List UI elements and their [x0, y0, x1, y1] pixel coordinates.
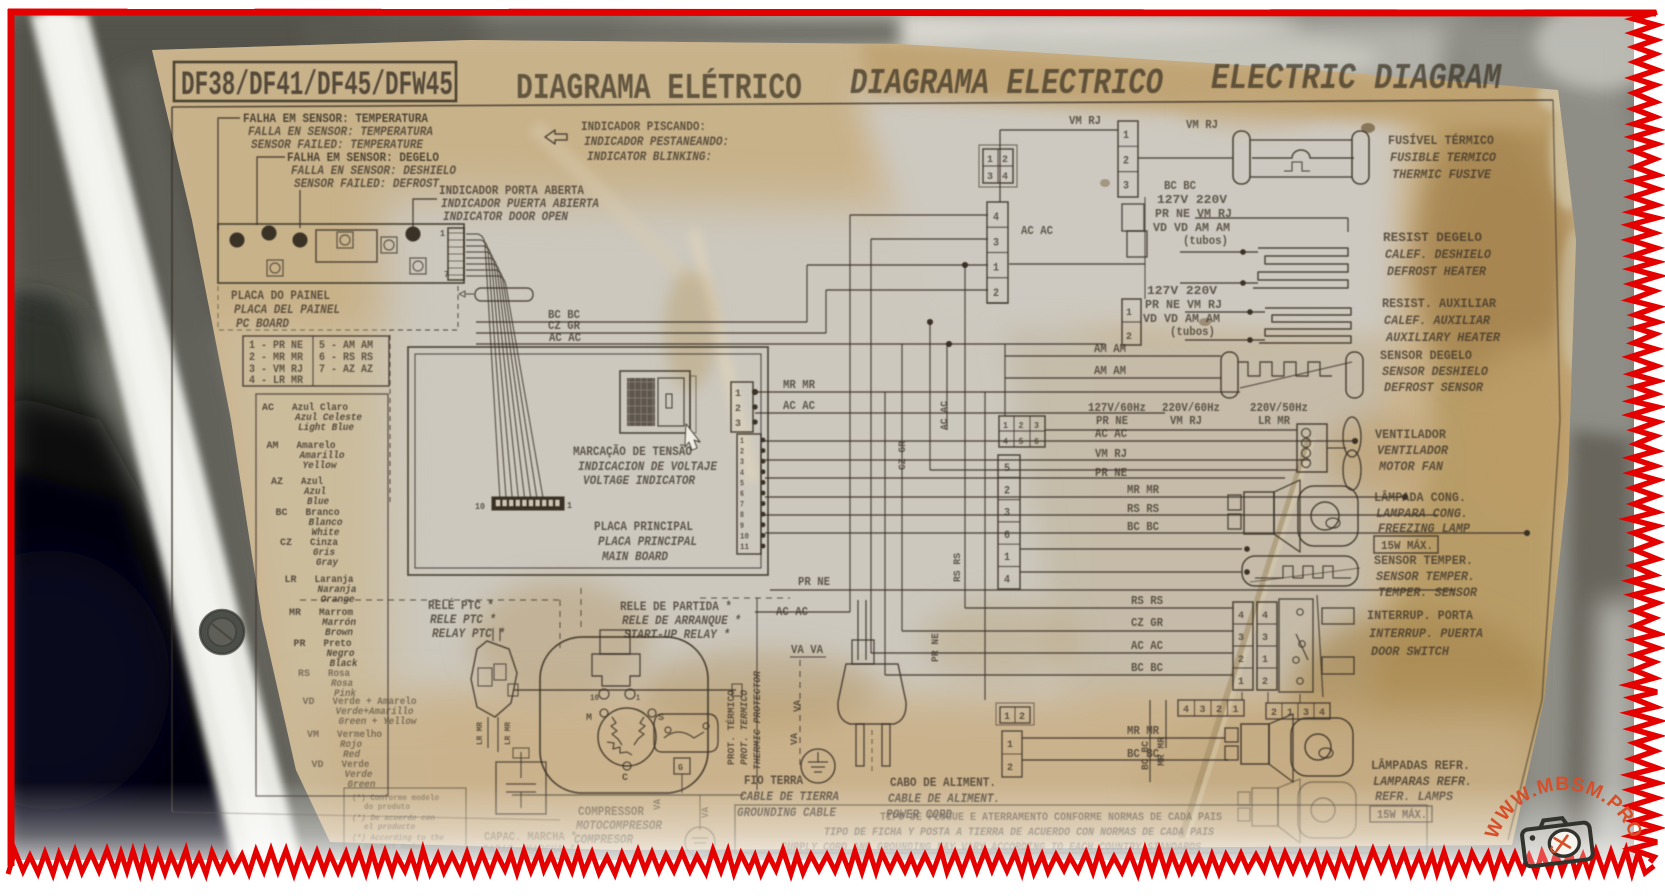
svg-text:VD: VD — [303, 696, 315, 708]
svg-text:LAMPARA CONG.: LAMPARA CONG. — [1376, 506, 1468, 521]
svg-text:DOOR SWITCH: DOOR SWITCH — [1371, 644, 1449, 659]
svg-text:15W MÁX.: 15W MÁX. — [1381, 538, 1433, 553]
svg-text:VD: VD — [312, 759, 324, 771]
svg-text:RELE DE PARTIDA *: RELE DE PARTIDA * — [620, 600, 732, 614]
svg-text:LR MR: LR MR — [503, 721, 513, 745]
svg-text:BC: BC — [276, 507, 289, 519]
svg-text:FALLA EN SENSOR: TEMPERATURA: FALLA EN SENSOR: TEMPERATURA — [248, 125, 433, 139]
svg-text:ELECTRIC DIAGRAM: ELECTRIC DIAGRAM — [1211, 58, 1502, 99]
svg-text:11: 11 — [740, 542, 749, 552]
svg-text:3: 3 — [1123, 181, 1129, 193]
svg-text:MOTOR FAN: MOTOR FAN — [1378, 459, 1443, 474]
svg-text:START-UP RELAY *: START-UP RELAY * — [624, 628, 730, 642]
svg-text:DIAGRAMA ELECTRICO: DIAGRAMA ELECTRICO — [850, 63, 1163, 104]
svg-text:RESIST DEGELO: RESIST DEGELO — [1383, 230, 1482, 245]
svg-text:6 - RS RS: 6 - RS RS — [319, 352, 373, 364]
svg-text:AC AC: AC AC — [1021, 224, 1053, 238]
svg-text:Gray: Gray — [316, 558, 339, 569]
svg-text:AC AC: AC AC — [939, 400, 951, 430]
svg-text:MR MR: MR MR — [1127, 724, 1160, 738]
svg-text:220V/50Hz: 220V/50Hz — [1250, 401, 1308, 415]
svg-text:6: 6 — [1004, 530, 1010, 542]
svg-text:3: 3 — [735, 419, 741, 430]
svg-text:4: 4 — [740, 468, 744, 478]
svg-text:PR NE: PR NE — [798, 575, 830, 589]
svg-text:7: 7 — [444, 270, 449, 280]
svg-text:FALLA EN SENSOR: DESHIELO: FALLA EN SENSOR: DESHIELO — [291, 164, 456, 178]
svg-text:2: 2 — [1004, 485, 1010, 497]
svg-text:6: 6 — [740, 489, 744, 499]
svg-text:DIAGRAMA ELÉTRICO: DIAGRAMA ELÉTRICO — [516, 67, 802, 109]
svg-text:2: 2 — [1123, 155, 1129, 167]
svg-text:1: 1 — [1004, 712, 1010, 723]
svg-text:VM RJ: VM RJ — [1186, 118, 1218, 132]
svg-text:RELE DE ARRANQUE *: RELE DE ARRANQUE * — [622, 614, 741, 628]
svg-text:VA VA: VA VA — [791, 643, 824, 657]
svg-text:4: 4 — [1004, 575, 1010, 587]
svg-text:Green + Yellow: Green + Yellow — [339, 716, 418, 728]
svg-text:Brown: Brown — [325, 628, 353, 639]
svg-text:PR NE VM RJ: PR NE VM RJ — [1155, 207, 1232, 221]
svg-text:9: 9 — [740, 521, 744, 531]
svg-text:SENSOR FAILED: DEFROST: SENSOR FAILED: DEFROST — [294, 177, 440, 191]
svg-text:1: 1 — [1004, 552, 1010, 564]
svg-text:5: 5 — [740, 478, 744, 488]
svg-text:7: 7 — [740, 500, 744, 510]
svg-text:127V 220V: 127V 220V — [1157, 193, 1228, 207]
svg-text:AC AC: AC AC — [1095, 427, 1127, 441]
svg-text:SENSOR DEGELO: SENSOR DEGELO — [1380, 348, 1472, 363]
svg-text:2: 2 — [1262, 676, 1268, 688]
svg-text:G: G — [678, 763, 683, 773]
svg-text:THERMIC PROTECTOR: THERMIC PROTECTOR — [752, 670, 764, 770]
svg-text:SENSOR DESHIELO: SENSOR DESHIELO — [1382, 364, 1488, 379]
svg-text:1: 1 — [1233, 705, 1239, 716]
svg-text:2: 2 — [1007, 763, 1013, 774]
svg-text:1: 1 — [1126, 308, 1132, 319]
svg-text:INTERRUP. PORTA: INTERRUP. PORTA — [1367, 608, 1473, 623]
svg-text:10: 10 — [740, 531, 749, 541]
svg-text:BC BC: BC BC — [1164, 179, 1196, 193]
svg-text:1: 1 — [993, 263, 999, 275]
svg-text:AUXILIARY HEATER: AUXILIARY HEATER — [1385, 330, 1500, 345]
svg-text:AC AC: AC AC — [1131, 639, 1163, 653]
svg-text:SENSOR FAILED: TEMPERATURE: SENSOR FAILED: TEMPERATURE — [251, 138, 423, 152]
svg-text:AM: AM — [267, 440, 279, 452]
svg-text:4: 4 — [1183, 705, 1189, 716]
svg-text:2: 2 — [735, 404, 741, 415]
svg-text:RS: RS — [298, 668, 310, 680]
svg-text:2: 2 — [740, 447, 744, 457]
svg-text:LÂMPADA CONG.: LÂMPADA CONG. — [1374, 490, 1466, 505]
svg-text:INDICADOR PUERTA ABIERTA: INDICADOR PUERTA ABIERTA — [441, 197, 599, 211]
svg-text:INDICADOR PESTANEANDO:: INDICADOR PESTANEANDO: — [584, 135, 729, 149]
svg-text:VM: VM — [307, 729, 319, 741]
svg-text:3: 3 — [1238, 632, 1244, 644]
svg-text:1: 1 — [440, 229, 446, 239]
svg-text:DEFROST SENSOR: DEFROST SENSOR — [1384, 380, 1483, 395]
svg-text:M: M — [586, 713, 592, 724]
svg-text:INDICADOR PISCANDO:: INDICADOR PISCANDO: — [581, 120, 706, 134]
svg-text:INDICADOR PORTA ABERTA: INDICADOR PORTA ABERTA — [439, 184, 584, 198]
svg-text:2: 2 — [1126, 332, 1132, 343]
svg-text:127V/60Hz: 127V/60Hz — [1088, 401, 1146, 415]
svg-text:CZ GR: CZ GR — [1131, 616, 1164, 630]
svg-text:LR MR: LR MR — [475, 721, 485, 745]
svg-text:VD VD AM AM: VD VD AM AM — [1143, 312, 1220, 326]
svg-text:4 - LR MR: 4 - LR MR — [249, 375, 303, 387]
svg-text:(tubos): (tubos) — [1170, 325, 1215, 339]
svg-text:MR MR: MR MR — [1127, 483, 1160, 497]
svg-text:INDICACION DE VOLTAJE: INDICACION DE VOLTAJE — [578, 460, 717, 474]
svg-text:6: 6 — [1034, 436, 1039, 447]
svg-text:MR MR: MR MR — [783, 378, 816, 392]
svg-text:FUSÍVEL TÉRMICO: FUSÍVEL TÉRMICO — [1388, 133, 1494, 148]
svg-text:1: 1 — [1003, 420, 1008, 431]
svg-text:3: 3 — [1200, 705, 1206, 716]
svg-text:RS RS: RS RS — [1131, 594, 1163, 608]
svg-text:Light Blue: Light Blue — [298, 422, 354, 434]
svg-text:1: 1 — [987, 155, 993, 166]
svg-text:LR: LR — [285, 574, 298, 586]
svg-text:Blue: Blue — [307, 496, 329, 508]
svg-text:VD VD AM AM: VD VD AM AM — [1153, 221, 1230, 235]
svg-text:3: 3 — [1004, 508, 1010, 520]
svg-text:BC BC: BC BC — [1127, 520, 1159, 534]
svg-text:1: 1 — [1238, 676, 1244, 688]
svg-text:CZ: CZ — [280, 537, 292, 549]
svg-text:4: 4 — [1262, 610, 1268, 622]
svg-text:2: 2 — [1019, 420, 1024, 431]
svg-text:PLACA PRINCIPAL: PLACA PRINCIPAL — [598, 535, 697, 549]
svg-text:MARCAÇÃO DE TENSÃO: MARCAÇÃO DE TENSÃO — [573, 444, 692, 459]
svg-text:220V/60Hz: 220V/60Hz — [1162, 401, 1220, 415]
svg-text:VENTILADOR: VENTILADOR — [1375, 427, 1446, 442]
svg-text:LR MR: LR MR — [1258, 414, 1291, 428]
svg-text:MR: MR — [289, 607, 302, 619]
svg-text:AC AC: AC AC — [783, 399, 815, 413]
svg-text:5: 5 — [1004, 463, 1010, 475]
svg-text:127V 220V: 127V 220V — [1147, 284, 1218, 298]
svg-text:RESIST. AUXILIAR: RESIST. AUXILIAR — [1382, 296, 1496, 311]
svg-text:RELAY PTC *: RELAY PTC * — [432, 627, 505, 641]
svg-text:(tubos): (tubos) — [1183, 234, 1228, 248]
svg-text:PLACA PRINCIPAL: PLACA PRINCIPAL — [594, 520, 693, 534]
svg-text:1: 1 — [1007, 740, 1013, 751]
svg-text:BC BC: BC BC — [1127, 747, 1159, 761]
svg-text:AC AC: AC AC — [776, 605, 808, 619]
svg-text:PROT. TERMICO: PROT. TERMICO — [739, 689, 751, 765]
svg-text:FALHA EM SENSOR: DEGELO: FALHA EM SENSOR: DEGELO — [287, 151, 439, 165]
svg-text:SENSOR TEMPER.: SENSOR TEMPER. — [1374, 553, 1473, 568]
svg-text:VM RJ: VM RJ — [1069, 114, 1101, 128]
svg-text:2 - MR MR: 2 - MR MR — [249, 352, 303, 364]
svg-text:INTERRUP. PUERTA: INTERRUP. PUERTA — [1369, 626, 1483, 641]
svg-text:3: 3 — [1034, 420, 1039, 431]
svg-text:1 - PR NE: 1 - PR NE — [249, 340, 303, 352]
svg-text:PR NE VM RJ: PR NE VM RJ — [1145, 298, 1222, 312]
svg-text:PR: PR — [294, 638, 307, 650]
svg-text:THERMIC FUSIVE: THERMIC FUSIVE — [1392, 167, 1492, 182]
svg-text:1: 1 — [567, 500, 572, 511]
svg-text:VM RJ: VM RJ — [1170, 414, 1202, 428]
svg-text:VOLTAGE INDICATOR: VOLTAGE INDICATOR — [583, 474, 695, 488]
svg-text:3: 3 — [993, 237, 999, 249]
svg-text:INDICATOR DOOR OPEN: INDICATOR DOOR OPEN — [443, 210, 568, 224]
svg-text:AM AM: AM AM — [1094, 364, 1126, 378]
svg-text:LÂMPADAS REFR.: LÂMPADAS REFR. — [1371, 758, 1470, 773]
svg-text:4: 4 — [993, 212, 999, 224]
svg-text:VA: VA — [792, 699, 804, 712]
svg-text:VM RJ: VM RJ — [1095, 447, 1127, 461]
svg-text:AC: AC — [262, 402, 275, 414]
svg-text:2: 2 — [1002, 155, 1008, 166]
svg-text:VENTILADOR: VENTILADOR — [1377, 443, 1448, 458]
svg-text:1: 1 — [636, 694, 640, 703]
svg-text:MAIN BOARD: MAIN BOARD — [601, 550, 668, 564]
svg-text:FALHA EM SENSOR: TEMPERATURA: FALHA EM SENSOR: TEMPERATURA — [243, 112, 428, 126]
svg-text:AM AM: AM AM — [1094, 342, 1126, 356]
svg-text:2: 2 — [1216, 705, 1222, 716]
svg-text:4: 4 — [1238, 610, 1244, 622]
svg-text:2: 2 — [993, 288, 999, 300]
svg-text:2: 2 — [1271, 708, 1277, 719]
svg-text:7 - AZ AZ: 7 - AZ AZ — [319, 364, 373, 376]
svg-text:3: 3 — [987, 172, 993, 183]
svg-text:3: 3 — [740, 457, 744, 467]
svg-text:2: 2 — [1238, 654, 1244, 666]
svg-text:RS RS: RS RS — [952, 553, 964, 582]
svg-text:1: 1 — [1262, 654, 1268, 666]
svg-text:DF38/DF41/DF45/DFW45: DF38/DF41/DF45/DFW45 — [181, 67, 453, 105]
svg-text:1: 1 — [735, 389, 741, 400]
svg-text:Yellow: Yellow — [303, 460, 338, 472]
svg-text:CALEF. AUXILIAR: CALEF. AUXILIAR — [1384, 313, 1490, 328]
svg-text:10: 10 — [475, 501, 485, 512]
svg-text:PROT. TÉRMICO: PROT. TÉRMICO — [724, 690, 738, 765]
svg-text:SENSOR TEMPER.: SENSOR TEMPER. — [1376, 569, 1475, 584]
svg-text:DEFROST HEATER: DEFROST HEATER — [1387, 264, 1486, 279]
svg-text:PC BOARD: PC BOARD — [236, 317, 289, 331]
svg-text:BC BC: BC BC — [1131, 661, 1163, 675]
svg-text:4: 4 — [1002, 172, 1008, 183]
svg-text:PLACA DO PAINEL: PLACA DO PAINEL — [231, 289, 330, 303]
svg-text:2: 2 — [1019, 712, 1025, 723]
svg-text:1: 1 — [1123, 130, 1129, 142]
svg-text:INDICATOR BLINKING:: INDICATOR BLINKING: — [587, 150, 712, 164]
svg-text:RELE PTC *: RELE PTC * — [430, 613, 496, 627]
svg-text:1: 1 — [1287, 708, 1293, 719]
svg-text:FUSIBLE TERMICO: FUSIBLE TERMICO — [1390, 150, 1496, 165]
svg-text:4: 4 — [1003, 436, 1008, 447]
svg-text:FREEZING LAMP: FREEZING LAMP — [1378, 521, 1470, 536]
svg-text:5 - AM AM: 5 - AM AM — [319, 340, 373, 352]
svg-text:PLACA DEL PAINEL: PLACA DEL PAINEL — [234, 303, 340, 317]
svg-text:RS RS: RS RS — [1127, 502, 1159, 516]
svg-text:VA: VA — [789, 732, 801, 745]
svg-text:PR NE: PR NE — [930, 633, 942, 662]
svg-text:5: 5 — [1019, 436, 1024, 447]
svg-text:TEMPER. SENSOR: TEMPER. SENSOR — [1378, 585, 1477, 600]
svg-text:CALEF. DESHIELO: CALEF. DESHIELO — [1385, 247, 1491, 262]
svg-text:CZ GR: CZ GR — [897, 440, 909, 470]
svg-text:8: 8 — [740, 510, 744, 520]
svg-text:AZ: AZ — [271, 476, 283, 488]
svg-text:1: 1 — [740, 436, 744, 446]
svg-text:PR NE: PR NE — [1096, 414, 1128, 428]
svg-text:3: 3 — [1262, 632, 1268, 644]
svg-text:10: 10 — [590, 694, 599, 703]
